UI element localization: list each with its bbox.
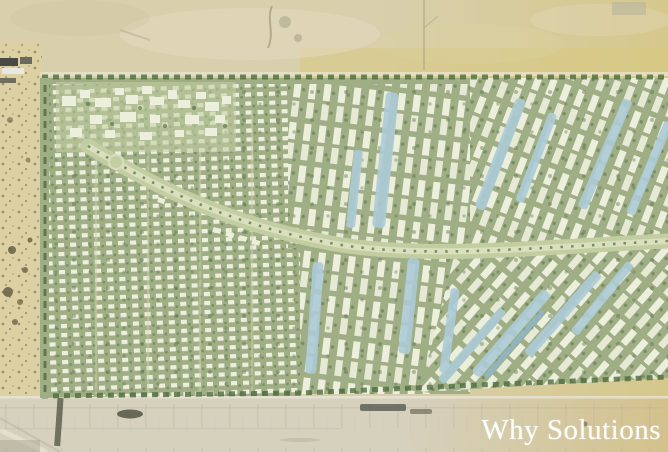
masterplan-map	[0, 0, 668, 452]
masterplan-screenshot: Why Solutions	[0, 0, 668, 452]
beach-strip	[0, 42, 42, 452]
west-promenade	[40, 78, 49, 398]
service-road	[0, 396, 668, 452]
development-area	[40, 72, 668, 398]
